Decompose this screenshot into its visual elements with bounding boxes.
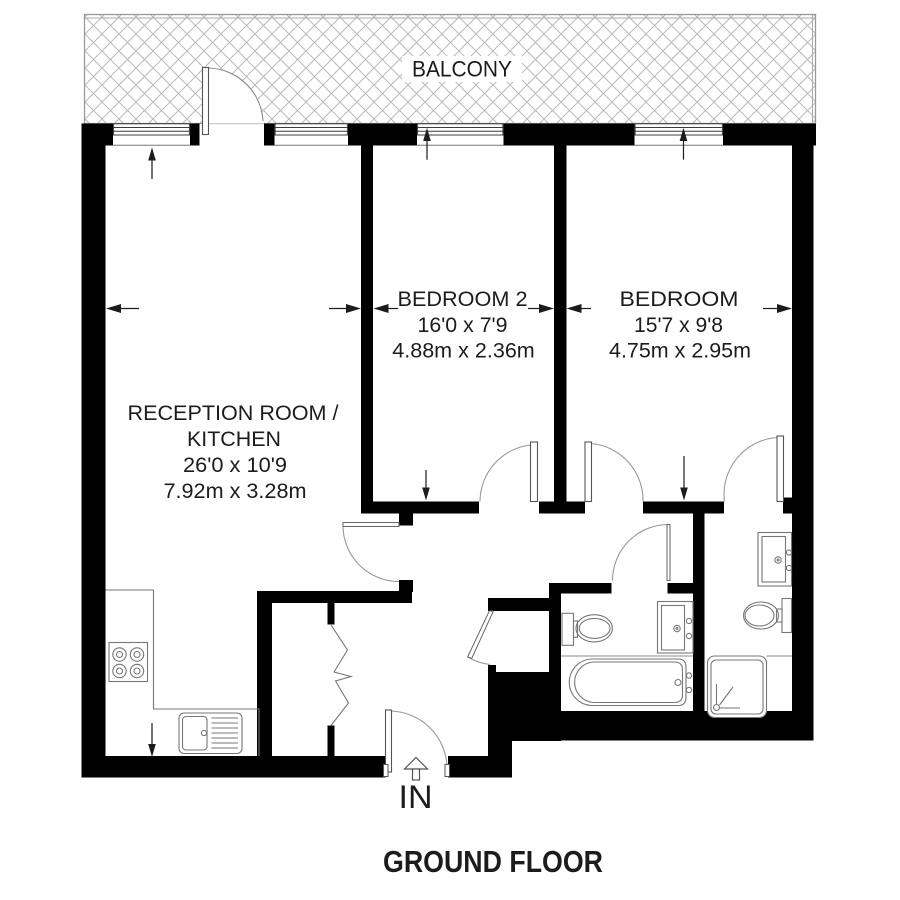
svg-text:16'0 x 7'9: 16'0 x 7'9 — [418, 314, 508, 337]
svg-text:BALCONY: BALCONY — [412, 57, 512, 82]
svg-text:BEDROOM 2: BEDROOM 2 — [398, 288, 528, 311]
svg-text:15'7 x 9'8: 15'7 x 9'8 — [634, 314, 723, 337]
svg-text:RECEPTION ROOM /: RECEPTION ROOM / — [128, 402, 339, 425]
svg-text:KITCHEN: KITCHEN — [187, 428, 281, 451]
svg-text:GROUND FLOOR: GROUND FLOOR — [383, 845, 603, 879]
svg-text:BEDROOM: BEDROOM — [620, 288, 739, 311]
svg-text:7.92m x 3.28m: 7.92m x 3.28m — [164, 480, 307, 503]
svg-text:IN: IN — [399, 779, 433, 815]
svg-text:4.88m x 2.36m: 4.88m x 2.36m — [392, 340, 535, 363]
svg-text:4.75m x 2.95m: 4.75m x 2.95m — [609, 340, 751, 363]
svg-text:26'0 x 10'9: 26'0 x 10'9 — [183, 454, 287, 477]
